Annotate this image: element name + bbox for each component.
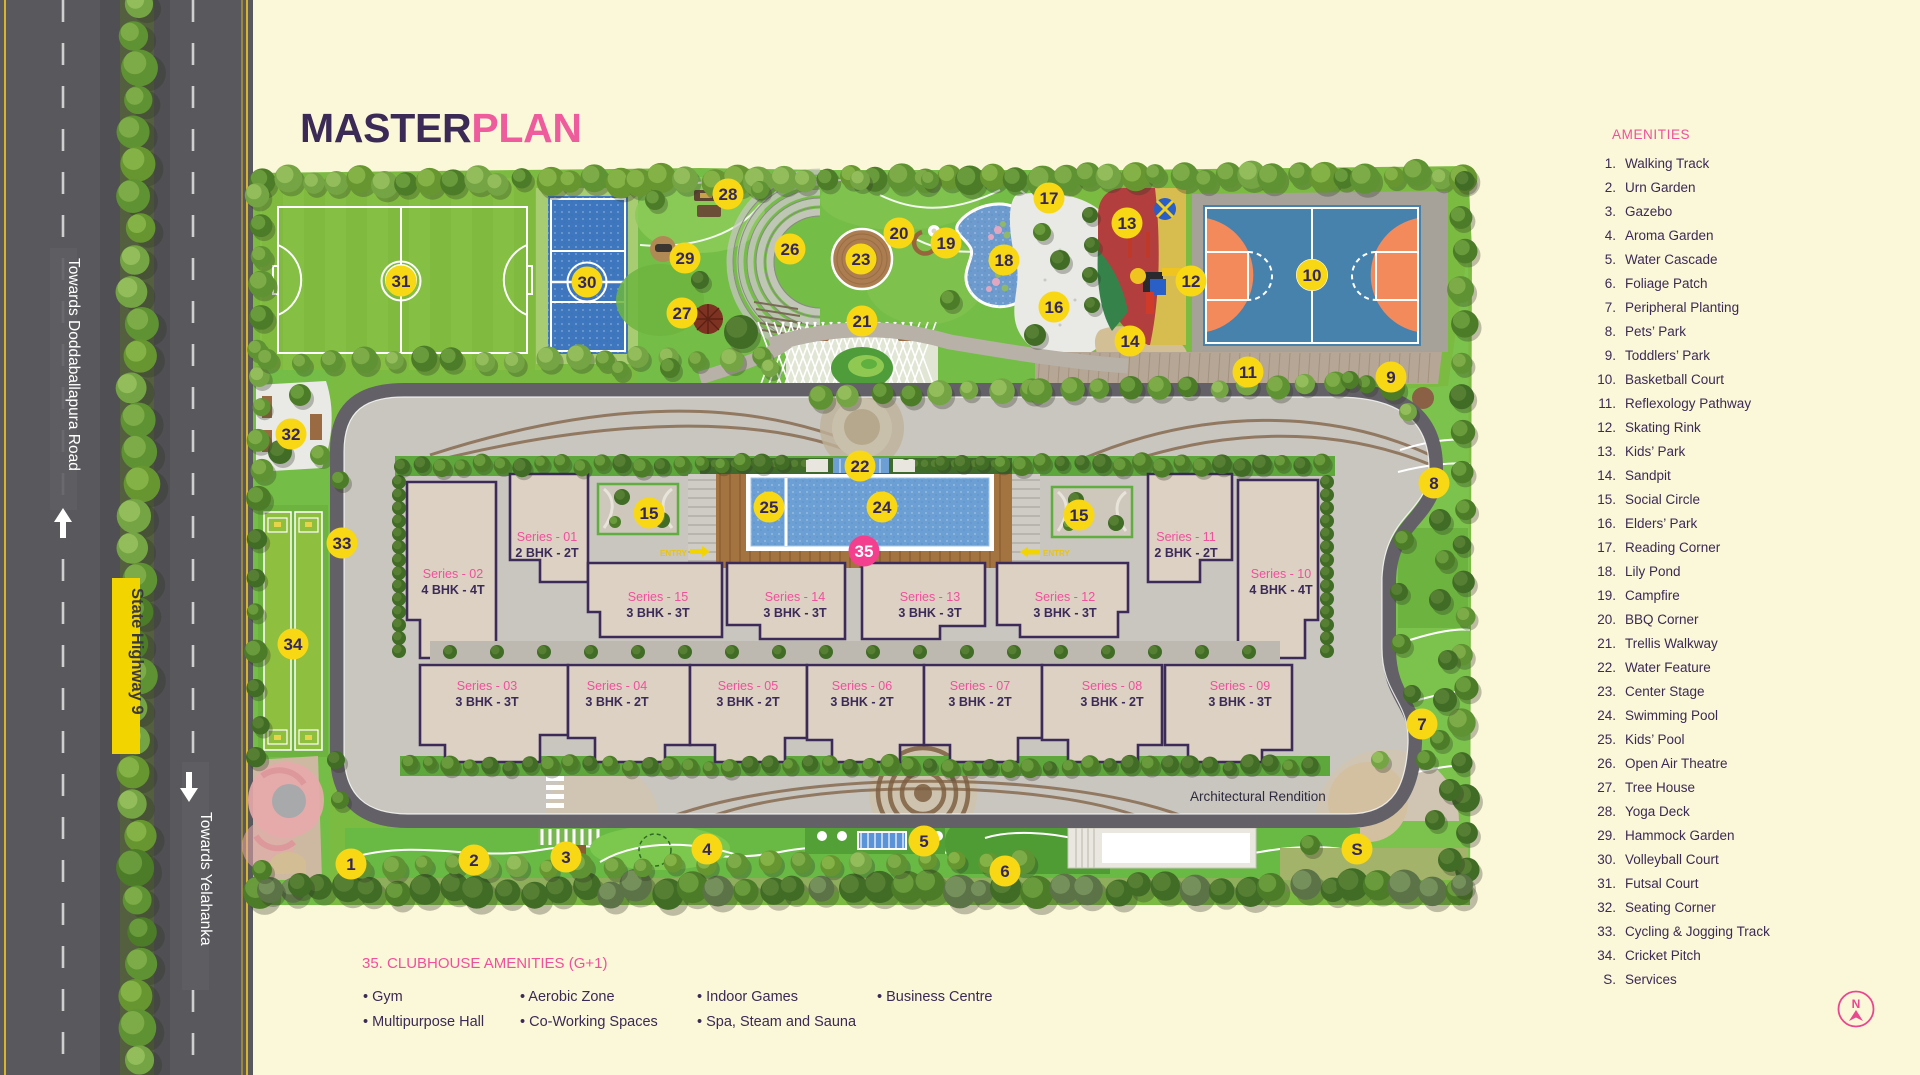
svg-text:Pets’ Park: Pets’ Park [1625, 324, 1686, 339]
svg-text:11.: 11. [1598, 396, 1616, 411]
svg-text:2 BHK - 2T: 2 BHK - 2T [1154, 546, 1218, 560]
svg-text:4 BHK - 4T: 4 BHK - 4T [1249, 583, 1313, 597]
svg-text:Hammock Garden: Hammock Garden [1625, 828, 1735, 843]
svg-text:25.: 25. [1597, 732, 1616, 747]
svg-text:Social Circle: Social Circle [1625, 492, 1700, 507]
svg-text:21.: 21. [1597, 636, 1616, 651]
svg-text:Kids’ Pool: Kids’ Pool [1625, 732, 1685, 747]
svg-text:Skating Rink: Skating Rink [1625, 420, 1701, 435]
svg-text:Series - 06: Series - 06 [832, 679, 892, 693]
svg-text:1: 1 [346, 855, 355, 874]
svg-text:Trellis Walkway: Trellis Walkway [1625, 636, 1718, 651]
svg-text:• Business Centre: • Business Centre [877, 989, 993, 1005]
svg-text:Services: Services [1625, 972, 1677, 987]
svg-text:17: 17 [1040, 189, 1059, 208]
svg-text:3 BHK - 2T: 3 BHK - 2T [1080, 695, 1144, 709]
svg-text:13: 13 [1118, 214, 1137, 233]
svg-text:S: S [1351, 840, 1362, 859]
svg-text:Seating Corner: Seating Corner [1625, 900, 1716, 915]
svg-text:Series - 08: Series - 08 [1082, 679, 1142, 693]
svg-text:19.: 19. [1597, 588, 1616, 603]
svg-text:29: 29 [676, 249, 695, 268]
svg-text:Elders’ Park: Elders’ Park [1625, 516, 1698, 531]
svg-text:Urn Garden: Urn Garden [1625, 180, 1696, 195]
svg-text:1.: 1. [1605, 156, 1616, 171]
svg-text:18.: 18. [1597, 564, 1616, 579]
svg-text:8: 8 [1429, 474, 1438, 493]
svg-text:Towards Yelahanka: Towards Yelahanka [197, 812, 214, 946]
svg-text:29.: 29. [1597, 828, 1616, 843]
svg-text:31: 31 [392, 272, 411, 291]
svg-text:2: 2 [469, 851, 478, 870]
svg-text:Series - 05: Series - 05 [718, 679, 778, 693]
svg-text:Kids’ Park: Kids’ Park [1625, 444, 1686, 459]
svg-text:Campfire: Campfire [1625, 588, 1680, 603]
svg-text:Sandpit: Sandpit [1625, 468, 1671, 483]
svg-text:• Multipurpose Hall: • Multipurpose Hall [363, 1014, 484, 1030]
svg-text:Basketball Court: Basketball Court [1625, 372, 1724, 387]
svg-text:• Co-Working Spaces: • Co-Working Spaces [520, 1014, 658, 1030]
svg-text:Series - 13: Series - 13 [900, 590, 960, 604]
svg-text:25: 25 [760, 498, 779, 517]
svg-text:S.: S. [1603, 972, 1616, 987]
svg-text:Water Feature: Water Feature [1625, 660, 1711, 675]
svg-text:Toddlers’ Park: Toddlers’ Park [1625, 348, 1710, 363]
svg-text:• Aerobic Zone: • Aerobic Zone [520, 989, 615, 1005]
svg-text:• Spa, Steam and Sauna: • Spa, Steam and Sauna [697, 1014, 857, 1030]
svg-text:3 BHK - 2T: 3 BHK - 2T [585, 695, 649, 709]
svg-text:13.: 13. [1597, 444, 1616, 459]
svg-text:23.: 23. [1597, 684, 1616, 699]
svg-text:Lily Pond: Lily Pond [1625, 564, 1681, 579]
svg-text:18: 18 [995, 251, 1014, 270]
svg-text:Towards Doddaballapura Road: Towards Doddaballapura Road [65, 258, 82, 471]
svg-text:21: 21 [853, 312, 872, 331]
svg-text:MASTERPLAN: MASTERPLAN [300, 105, 582, 151]
svg-text:14.: 14. [1597, 468, 1616, 483]
svg-text:Water Cascade: Water Cascade [1625, 252, 1718, 267]
svg-text:Yoga Deck: Yoga Deck [1625, 804, 1690, 819]
svg-text:Series - 09: Series - 09 [1210, 679, 1270, 693]
svg-text:12: 12 [1182, 272, 1201, 291]
svg-text:10.: 10. [1597, 372, 1616, 387]
svg-text:33.: 33. [1597, 924, 1616, 939]
svg-text:7: 7 [1417, 715, 1426, 734]
svg-text:ENTRY: ENTRY [660, 549, 687, 558]
svg-text:28: 28 [719, 185, 738, 204]
svg-text:22: 22 [851, 457, 870, 476]
svg-text:Futsal Court: Futsal Court [1625, 876, 1699, 891]
svg-text:10: 10 [1303, 266, 1322, 285]
svg-text:Cricket Pitch: Cricket Pitch [1625, 948, 1701, 963]
svg-text:27.: 27. [1597, 780, 1616, 795]
svg-text:Foliage Patch: Foliage Patch [1625, 276, 1708, 291]
svg-text:Open Air Theatre: Open Air Theatre [1625, 756, 1728, 771]
svg-text:31.: 31. [1597, 876, 1616, 891]
svg-text:4: 4 [702, 840, 712, 859]
svg-text:2.: 2. [1605, 180, 1616, 195]
svg-text:5.: 5. [1605, 252, 1616, 267]
svg-text:24: 24 [873, 498, 892, 517]
svg-text:Center Stage: Center Stage [1625, 684, 1705, 699]
svg-text:35: 35 [855, 542, 874, 561]
svg-text:16: 16 [1045, 298, 1064, 317]
svg-text:Series - 10: Series - 10 [1251, 567, 1311, 581]
svg-text:Series - 11: Series - 11 [1156, 530, 1216, 544]
svg-text:34.: 34. [1597, 948, 1616, 963]
svg-text:20: 20 [890, 224, 909, 243]
svg-text:3: 3 [561, 848, 570, 867]
svg-text:11: 11 [1239, 363, 1257, 382]
svg-text:• Gym: • Gym [363, 989, 403, 1005]
svg-text:Peripheral Planting: Peripheral Planting [1625, 300, 1739, 315]
svg-text:17.: 17. [1597, 540, 1616, 555]
svg-text:3.: 3. [1605, 204, 1616, 219]
svg-text:3 BHK - 3T: 3 BHK - 3T [1208, 695, 1272, 709]
svg-text:Reading Corner: Reading Corner [1625, 540, 1721, 555]
svg-text:9.: 9. [1605, 348, 1616, 363]
svg-text:Aroma Garden: Aroma Garden [1625, 228, 1714, 243]
svg-text:27: 27 [673, 304, 692, 323]
svg-text:35. CLUBHOUSE AMENITIES (G+1): 35. CLUBHOUSE AMENITIES (G+1) [362, 955, 608, 972]
svg-text:33: 33 [333, 534, 352, 553]
svg-text:34: 34 [284, 635, 303, 654]
svg-text:3 BHK - 3T: 3 BHK - 3T [1033, 606, 1097, 620]
svg-text:Series - 15: Series - 15 [628, 590, 688, 604]
svg-text:ENTRY: ENTRY [1043, 549, 1070, 558]
svg-text:9: 9 [1386, 368, 1395, 387]
svg-text:7.: 7. [1605, 300, 1616, 315]
svg-text:Series - 07: Series - 07 [950, 679, 1010, 693]
svg-text:3 BHK - 3T: 3 BHK - 3T [898, 606, 962, 620]
svg-text:32.: 32. [1597, 900, 1616, 915]
svg-text:BBQ Corner: BBQ Corner [1625, 612, 1699, 627]
svg-text:19: 19 [937, 234, 956, 253]
svg-text:30: 30 [578, 273, 597, 292]
svg-text:15.: 15. [1597, 492, 1616, 507]
svg-text:15: 15 [640, 504, 659, 523]
svg-text:6: 6 [1000, 862, 1009, 881]
svg-text:30.: 30. [1597, 852, 1616, 867]
svg-text:Walking Track: Walking Track [1625, 156, 1710, 171]
svg-text:State Highway 9: State Highway 9 [128, 588, 146, 715]
svg-text:3 BHK - 2T: 3 BHK - 2T [948, 695, 1012, 709]
svg-text:26: 26 [781, 240, 800, 259]
svg-text:8.: 8. [1605, 324, 1616, 339]
svg-text:Series - 12: Series - 12 [1035, 590, 1095, 604]
svg-text:Series - 04: Series - 04 [587, 679, 647, 693]
svg-text:32: 32 [282, 425, 301, 444]
svg-text:Tree House: Tree House [1625, 780, 1695, 795]
svg-text:Architectural Rendition: Architectural Rendition [1190, 789, 1326, 804]
svg-text:6.: 6. [1605, 276, 1616, 291]
svg-text:• Indoor Games: • Indoor Games [697, 989, 798, 1005]
svg-text:Volleyball Court: Volleyball Court [1625, 852, 1719, 867]
svg-text:N: N [1852, 997, 1861, 1011]
svg-text:2 BHK - 2T: 2 BHK - 2T [515, 546, 579, 560]
svg-text:12.: 12. [1597, 420, 1616, 435]
svg-text:Series - 01: Series - 01 [517, 530, 577, 544]
svg-text:AMENITIES: AMENITIES [1612, 127, 1690, 142]
svg-text:16.: 16. [1597, 516, 1616, 531]
svg-text:23: 23 [852, 250, 871, 269]
svg-text:14: 14 [1121, 332, 1140, 351]
svg-text:3 BHK - 2T: 3 BHK - 2T [716, 695, 780, 709]
svg-text:Series - 14: Series - 14 [765, 590, 825, 604]
svg-text:5: 5 [919, 832, 928, 851]
svg-text:Reflexology Pathway: Reflexology Pathway [1625, 396, 1751, 411]
svg-text:3 BHK - 3T: 3 BHK - 3T [455, 695, 519, 709]
svg-text:4 BHK - 4T: 4 BHK - 4T [421, 583, 485, 597]
svg-text:Series - 03: Series - 03 [457, 679, 517, 693]
svg-text:Gazebo: Gazebo [1625, 204, 1672, 219]
svg-text:26.: 26. [1597, 756, 1616, 771]
svg-text:28.: 28. [1597, 804, 1616, 819]
svg-text:Swimming Pool: Swimming Pool [1625, 708, 1718, 723]
svg-text:4.: 4. [1605, 228, 1616, 243]
svg-text:20.: 20. [1597, 612, 1616, 627]
svg-text:15: 15 [1070, 506, 1089, 525]
svg-text:3 BHK - 3T: 3 BHK - 3T [626, 606, 690, 620]
svg-text:22.: 22. [1597, 660, 1616, 675]
svg-text:24.: 24. [1597, 708, 1616, 723]
svg-text:Cycling & Jogging Track: Cycling & Jogging Track [1625, 924, 1770, 939]
svg-text:Series - 02: Series - 02 [423, 567, 483, 581]
svg-text:3 BHK - 2T: 3 BHK - 2T [830, 695, 894, 709]
svg-text:3 BHK - 3T: 3 BHK - 3T [763, 606, 827, 620]
